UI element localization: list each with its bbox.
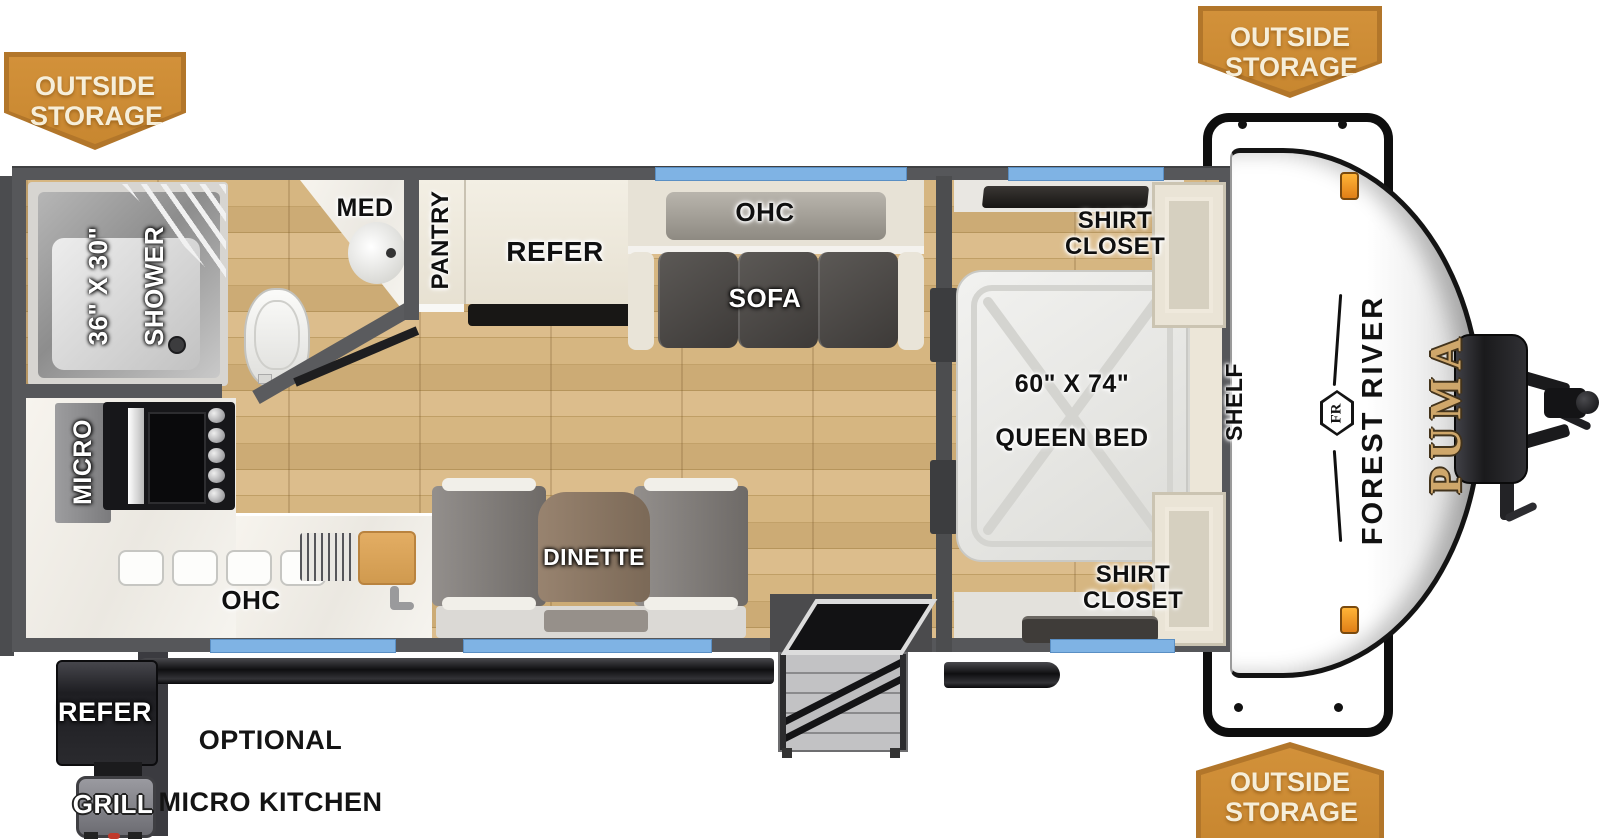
burner-icon bbox=[208, 448, 225, 463]
awning-arm bbox=[134, 658, 774, 684]
dish bbox=[118, 550, 164, 586]
toilet-seat-line bbox=[254, 300, 300, 370]
oven-door-open bbox=[128, 408, 144, 504]
outside-refrigerator-label: REFER bbox=[58, 698, 152, 727]
awning-arm bbox=[944, 662, 1060, 688]
sofa-cushion bbox=[658, 252, 738, 348]
bolt-icon bbox=[1234, 703, 1243, 712]
step-foot bbox=[890, 748, 900, 758]
step-foot bbox=[782, 748, 792, 758]
bedroom-partition-wall bbox=[936, 176, 952, 652]
hitch-ball-socket bbox=[1576, 391, 1599, 414]
bench-cap bbox=[644, 597, 738, 610]
partition-jamb bbox=[930, 288, 958, 362]
sofa-armrest bbox=[628, 252, 654, 350]
dish bbox=[226, 550, 272, 586]
bathroom-wall-bottom bbox=[26, 384, 222, 398]
grill-foot bbox=[128, 832, 142, 839]
sofa-armrest bbox=[898, 252, 924, 350]
marker-light-icon bbox=[1340, 172, 1359, 200]
window bbox=[210, 639, 396, 653]
burner-icon bbox=[208, 468, 225, 483]
outside-grill-label: GRILL bbox=[73, 790, 154, 818]
floorplan-canvas: 36" X 30" SHOWER MED MICRO OHC bbox=[0, 0, 1600, 840]
outside-storage-badge-front-bottom: OUTSIDE STORAGE bbox=[1196, 742, 1384, 838]
dinette-bench bbox=[432, 486, 546, 606]
shirt-closet-rear-label: SHIRT CLOSET bbox=[1065, 208, 1165, 260]
shower-label: 36" X 30" SHOWER bbox=[56, 226, 168, 346]
medicine-cabinet-label: MED bbox=[336, 195, 393, 222]
counter-edge-highlight bbox=[236, 513, 432, 516]
bench-cap bbox=[644, 478, 738, 491]
dinette-label: DINETTE bbox=[543, 545, 645, 570]
optional-micro-kitchen-label: OPTIONAL MICRO KITCHEN bbox=[148, 694, 393, 818]
window bbox=[1008, 167, 1164, 181]
bolt-icon bbox=[1338, 120, 1347, 129]
faucet-icon bbox=[390, 602, 414, 610]
bench-cap bbox=[442, 597, 536, 610]
grill-knob bbox=[108, 833, 120, 839]
pantry-label: PANTRY bbox=[428, 191, 454, 290]
faucet-icon bbox=[386, 248, 396, 258]
cutting-board bbox=[358, 531, 416, 585]
model-wordmark: PUMA bbox=[1420, 330, 1471, 494]
shower-drain-icon bbox=[168, 336, 186, 354]
queen-bed-label: 60" X 74" QUEEN BED bbox=[995, 344, 1148, 452]
dinette-bench bbox=[634, 486, 748, 606]
grill-foot bbox=[84, 832, 98, 839]
oven-cavity bbox=[148, 412, 206, 504]
window bbox=[1050, 639, 1175, 653]
cabinet-shadow bbox=[468, 304, 652, 326]
cabinet-lip bbox=[419, 304, 464, 312]
burner-icon bbox=[208, 408, 225, 423]
sofa-cushion bbox=[818, 252, 898, 348]
tv bbox=[982, 186, 1149, 208]
bathroom-sink bbox=[348, 222, 406, 284]
entry-steps bbox=[778, 652, 908, 752]
burner-icon bbox=[208, 428, 225, 443]
living-ohc-label: OHC bbox=[735, 198, 794, 226]
marker-light-icon bbox=[1340, 606, 1359, 634]
dinette-table-shadow bbox=[544, 610, 648, 632]
bench-cap bbox=[442, 478, 536, 491]
microwave-label: MICRO bbox=[70, 419, 97, 505]
refrigerator-label: REFER bbox=[506, 237, 603, 267]
shirt-closet-front-label: SHIRT CLOSET bbox=[1083, 562, 1183, 614]
partition-jamb bbox=[930, 460, 958, 534]
shelf-label: SHELF bbox=[1222, 363, 1247, 441]
dish bbox=[172, 550, 218, 586]
outside-storage-badge-rear: OUTSIDE STORAGE bbox=[4, 52, 186, 150]
bolt-icon bbox=[1334, 703, 1343, 712]
manufacturer-wordmark: FOREST RIVER bbox=[1358, 295, 1389, 545]
kitchen-ohc-label: OHC bbox=[221, 586, 280, 614]
burner-icon bbox=[208, 488, 225, 503]
bolt-icon bbox=[1238, 120, 1247, 129]
forest-river-monogram: FR bbox=[1329, 403, 1346, 423]
sofa-label: SOFA bbox=[729, 284, 802, 312]
outside-storage-badge-front-top: OUTSIDE STORAGE bbox=[1198, 6, 1382, 98]
dish-rack bbox=[300, 533, 356, 581]
window bbox=[463, 639, 712, 653]
window bbox=[655, 167, 907, 181]
